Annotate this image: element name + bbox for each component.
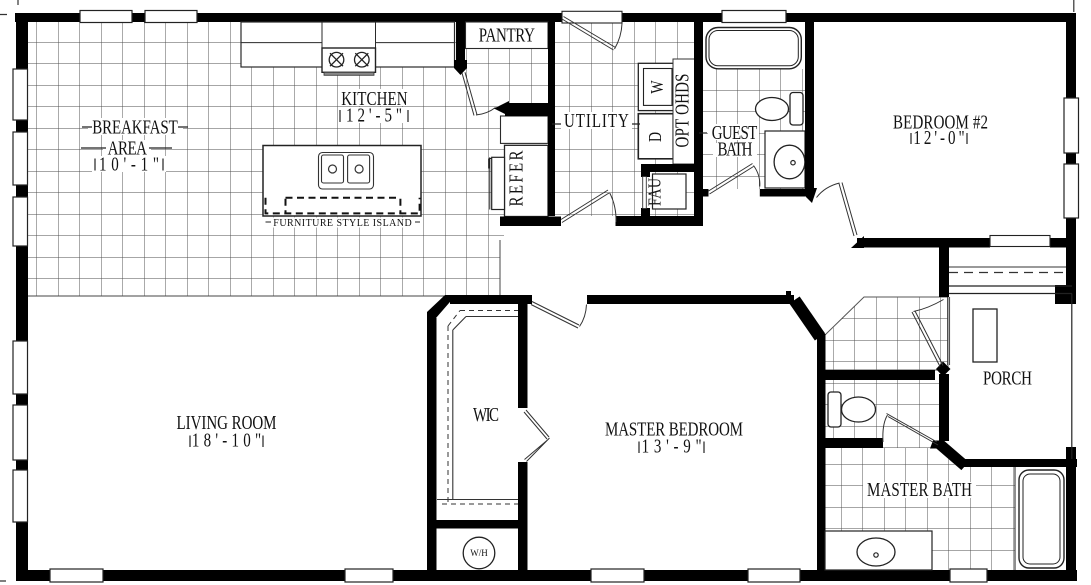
svg-text:UTILITY: UTILITY (564, 110, 629, 131)
svg-text:BREAKFAST: BREAKFAST (92, 117, 178, 138)
svg-text:W: W (647, 80, 667, 94)
svg-text:BATH: BATH (718, 138, 753, 159)
svg-text:PORCH: PORCH (983, 368, 1032, 389)
svg-text:FURNITURE STYLE ISLAND: FURNITURE STYLE ISLAND (273, 218, 412, 229)
svg-text:OPT OHDS: OPT OHDS (672, 74, 693, 148)
svg-text:PANTRY: PANTRY (479, 24, 536, 45)
svg-text:REFER: REFER (506, 150, 527, 206)
svg-text:WIC: WIC (473, 404, 499, 425)
svg-text:MASTER BATH: MASTER BATH (867, 479, 972, 500)
svg-text:FAU: FAU (645, 178, 665, 206)
svg-text:D: D (645, 132, 665, 142)
svg-text:W/H: W/H (470, 548, 488, 558)
